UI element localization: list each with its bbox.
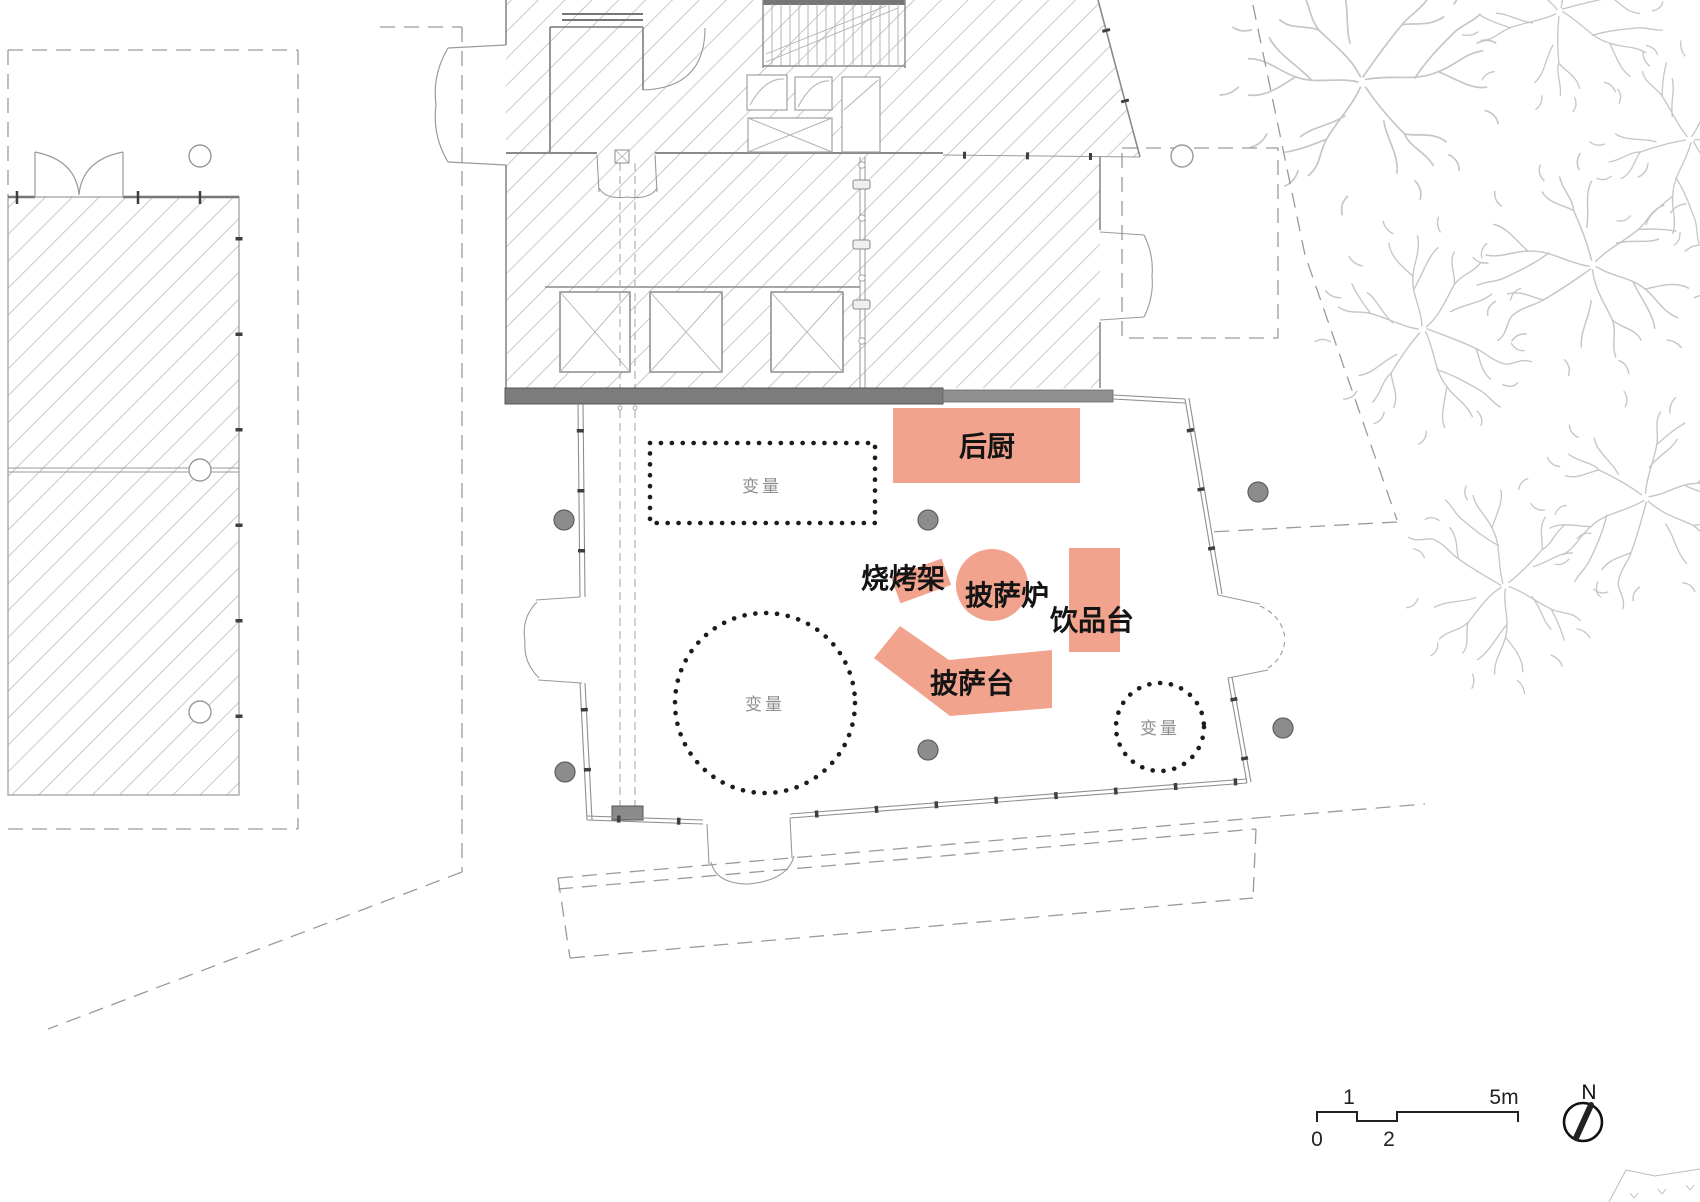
wall-fitting-dot — [859, 162, 865, 168]
variable-label: 变量 — [745, 695, 785, 714]
north-building — [435, 0, 1193, 388]
west-terrace-door — [524, 597, 582, 683]
west-building-entry-door — [35, 152, 123, 197]
column-circle — [189, 145, 211, 167]
column-dot — [918, 510, 938, 530]
service-box — [747, 75, 787, 110]
north-arrow-needle — [1576, 1105, 1591, 1138]
door-leaf — [1218, 595, 1268, 678]
drink-station-zone — [1069, 548, 1120, 652]
boundary-line — [570, 898, 1253, 958]
wall-segment — [578, 404, 585, 597]
door-swing-arc — [524, 602, 539, 678]
scale-tick-1: 1 — [1343, 1086, 1355, 1109]
wall-fitting — [853, 180, 870, 189]
scale-tick-0: 0 — [1311, 1128, 1323, 1151]
pizza-oven-label: 披萨炉 — [965, 580, 1049, 611]
variable-label: 变量 — [1140, 719, 1180, 738]
wall-segment — [1228, 677, 1251, 783]
program-zones: 后厨 烧烤架 披萨炉 饮品台 披萨台 — [861, 408, 1134, 716]
service-box — [795, 77, 832, 110]
east-terrace-door — [1218, 595, 1285, 678]
floor-plan-drawing: 后厨 烧烤架 披萨炉 饮品台 披萨台 变量 变量 变量 1 5m 0 2 N — [0, 0, 1700, 1202]
north-building-west-door — [435, 45, 506, 165]
south-terrace-door — [707, 818, 794, 884]
wall-segment — [1113, 395, 1185, 403]
future-area-dashed-rect — [1122, 148, 1278, 338]
columns — [554, 482, 1293, 782]
door-swing-arc — [435, 48, 448, 162]
column-dot — [1273, 718, 1293, 738]
service-box — [842, 77, 880, 152]
column-dot — [554, 510, 574, 530]
column-dot — [555, 762, 575, 782]
stair-top-beam — [763, 0, 905, 5]
wall-segment — [587, 816, 703, 824]
kitchen-label: 后厨 — [959, 431, 1015, 462]
scale-bar: 1 5m 0 2 — [1311, 1086, 1518, 1151]
boundary-line — [1256, 804, 1425, 818]
landscape-trees — [1220, 0, 1700, 703]
boundary-line — [558, 829, 1256, 889]
door-swing-arc — [35, 152, 123, 195]
column-circle — [1171, 145, 1193, 167]
west-building — [8, 145, 239, 795]
drink-station-label: 饮品台 — [1049, 604, 1134, 636]
fragment-marks — [1630, 1185, 1694, 1198]
floor-plan-page: 后厨 烧烤架 披萨炉 饮品台 披萨台 变量 变量 变量 1 5m 0 2 N — [0, 0, 1700, 1202]
column-dot — [918, 740, 938, 760]
door-swing-arc — [1260, 606, 1285, 668]
door-leaf — [448, 45, 506, 165]
boundary-line — [1253, 5, 1397, 520]
boundary-line — [1210, 522, 1397, 532]
boundary-line — [48, 872, 462, 1029]
scale-tick-5m: 5m — [1489, 1086, 1518, 1109]
wall-fitting — [853, 300, 870, 309]
north-arrow-label: N — [1581, 1081, 1596, 1104]
scale-tick-2: 2 — [1383, 1128, 1395, 1151]
tree-icon — [1290, 191, 1553, 463]
tree-icon — [1220, 0, 1498, 215]
wall-segment — [1185, 398, 1222, 595]
column-circle — [189, 459, 211, 481]
tree-icon — [1396, 473, 1616, 704]
door-leaf — [536, 597, 582, 683]
wall-segment — [790, 779, 1247, 818]
grill-label: 烧烤架 — [861, 563, 945, 594]
boundary-line — [558, 878, 570, 958]
north-building-east-door — [1100, 232, 1152, 320]
wall-segment — [580, 683, 592, 820]
wall-fitting-dot — [859, 338, 865, 344]
column-circle — [189, 701, 211, 723]
elevator-bank — [545, 287, 860, 372]
track-dot — [633, 406, 637, 410]
north-wall-medium — [943, 390, 1113, 402]
corner-drawing-fragment — [1609, 1169, 1700, 1202]
door-leaf — [707, 818, 792, 864]
scale-bar-line — [1317, 1112, 1518, 1122]
wall-fitting-dot — [859, 215, 865, 221]
boundary-line — [558, 818, 1256, 878]
door-swing-arc — [1144, 235, 1152, 317]
wall-fitting-dot — [859, 275, 865, 281]
tree-icon — [1554, 0, 1700, 277]
variable-label: 变量 — [742, 477, 782, 496]
pizza-table-label: 披萨台 — [930, 667, 1014, 699]
north-wall-dark — [505, 388, 943, 404]
wall-fitting — [853, 240, 870, 249]
column-dot — [1248, 482, 1268, 502]
boundary-line — [1253, 829, 1256, 898]
north-arrow: N — [1564, 1081, 1602, 1141]
track-dot — [618, 406, 622, 410]
